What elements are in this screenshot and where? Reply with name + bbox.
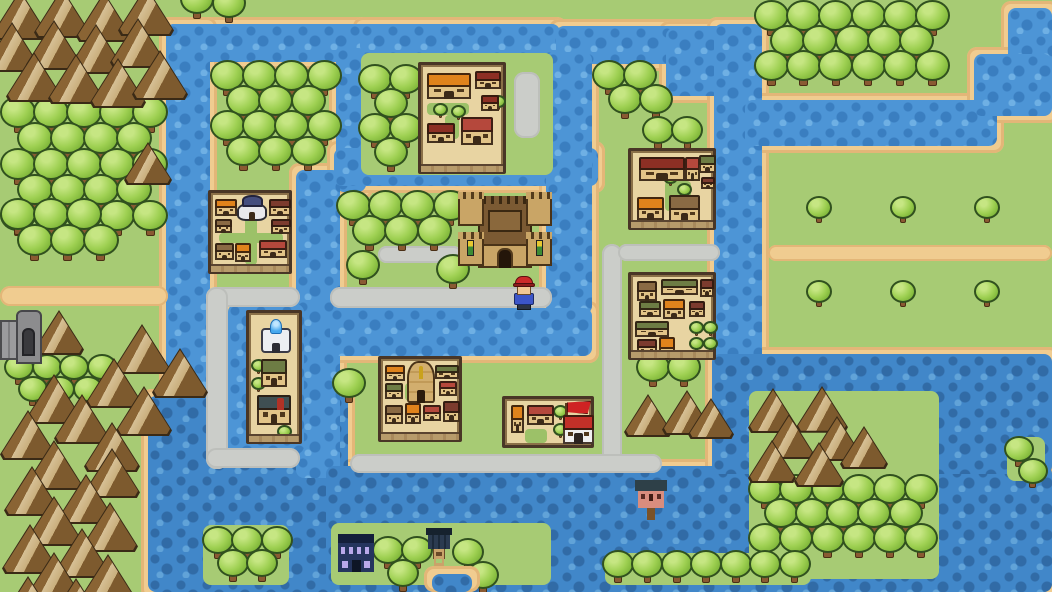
pier-hut-wall bbox=[638, 491, 664, 508]
house-brown-roof[interactable] bbox=[385, 405, 403, 424]
house-darkred-roof-door bbox=[438, 137, 445, 143]
river-arm-northeast bbox=[745, 100, 997, 146]
tower-door bbox=[417, 390, 426, 403]
house-maroon-roof[interactable] bbox=[443, 401, 460, 422]
watchtower-box bbox=[428, 535, 450, 549]
tree bbox=[291, 136, 326, 173]
house-orange-roof[interactable] bbox=[663, 299, 685, 319]
house-maroon-roof-door bbox=[449, 415, 453, 422]
tree-canopy bbox=[806, 280, 832, 303]
house-maroon-roof-roof bbox=[701, 177, 715, 184]
long-house-orange-roof-door bbox=[444, 91, 455, 99]
house-green-roof-roof bbox=[699, 155, 716, 165]
tree bbox=[873, 523, 907, 559]
tree-canopy bbox=[904, 523, 938, 553]
house-maroon-roof[interactable] bbox=[689, 301, 705, 317]
house-darkred-roof-roof bbox=[475, 71, 501, 81]
house-maroon-roof-roof bbox=[443, 401, 460, 413]
tall-house-red-roof[interactable] bbox=[685, 157, 700, 181]
window bbox=[342, 561, 348, 568]
tree bbox=[417, 215, 452, 252]
tree-canopy bbox=[631, 550, 663, 578]
tree-canopy bbox=[50, 224, 86, 256]
tree-canopy bbox=[433, 103, 448, 116]
tree-canopy bbox=[883, 50, 918, 81]
tree-canopy bbox=[671, 116, 703, 144]
town-tree bbox=[703, 321, 718, 337]
flag-house-door bbox=[574, 433, 583, 444]
tree-canopy bbox=[226, 136, 261, 167]
pier-hut-roof bbox=[635, 480, 667, 491]
house-green-roof-door bbox=[648, 332, 656, 337]
tree-canopy bbox=[387, 559, 419, 587]
house-maroon-roof-door bbox=[279, 229, 284, 234]
tree-canopy bbox=[180, 0, 214, 14]
tree-canopy bbox=[779, 523, 813, 553]
town-wall-footer bbox=[381, 432, 459, 440]
castle-gate[interactable] bbox=[497, 248, 513, 268]
castle[interactable] bbox=[458, 188, 552, 268]
house-red-roof[interactable] bbox=[259, 240, 287, 258]
tree-canopy bbox=[83, 224, 119, 256]
long-house-darkred-roof-door bbox=[656, 173, 667, 181]
tree-canopy bbox=[890, 196, 916, 219]
house-orange-roof[interactable] bbox=[405, 403, 421, 424]
tree-canopy bbox=[661, 550, 693, 578]
house-green-roof[interactable] bbox=[639, 301, 661, 317]
house-green-roof-roof bbox=[385, 383, 403, 392]
house-orange-roof[interactable] bbox=[385, 365, 405, 381]
window bbox=[641, 494, 645, 499]
tower-crenellation bbox=[526, 232, 552, 239]
tree-canopy bbox=[703, 321, 718, 334]
house-red-roof[interactable] bbox=[439, 381, 457, 396]
player-character[interactable] bbox=[513, 276, 535, 310]
house-brown-roof-roof bbox=[669, 195, 700, 210]
tree-canopy bbox=[873, 523, 907, 553]
dark-building-door[interactable] bbox=[352, 560, 361, 572]
tree bbox=[661, 550, 693, 584]
tree bbox=[842, 523, 876, 559]
tree-canopy bbox=[1018, 458, 1048, 484]
house-maroon-roof-roof bbox=[271, 219, 291, 227]
town-wall-footer bbox=[631, 220, 713, 228]
town-wall-footer bbox=[211, 264, 289, 272]
house-darkred-roof-door bbox=[485, 83, 491, 89]
house-darkred-roof-door bbox=[488, 106, 492, 111]
tree-canopy bbox=[217, 549, 249, 577]
long-house-green-roof-door bbox=[675, 290, 684, 295]
tree-canopy bbox=[915, 50, 950, 81]
tree-canopy bbox=[720, 550, 752, 578]
player-cap-brim bbox=[513, 283, 535, 287]
house-brown-roof-roof bbox=[637, 281, 657, 292]
tall-house-orange-roof-roof bbox=[659, 337, 675, 349]
tree bbox=[851, 50, 886, 87]
house-maroon-roof[interactable] bbox=[701, 177, 715, 189]
house-orange-roof-roof bbox=[405, 403, 421, 415]
tree-canopy bbox=[749, 550, 781, 578]
town-wall-footer bbox=[249, 434, 299, 442]
river-step-northeast bbox=[974, 54, 1052, 116]
house-red-roof-door bbox=[270, 252, 277, 258]
house-green-roof[interactable] bbox=[635, 321, 669, 337]
tree-canopy bbox=[291, 136, 326, 167]
house-green-roof-roof bbox=[639, 301, 661, 310]
house-darkred-roof[interactable] bbox=[481, 95, 499, 111]
tree bbox=[779, 550, 811, 584]
house-green-roof-roof bbox=[435, 365, 459, 373]
house-brown-roof-roof bbox=[385, 405, 403, 415]
house-red-roof-roof bbox=[527, 405, 554, 416]
tower-town[interactable] bbox=[378, 356, 462, 442]
tree bbox=[720, 550, 752, 584]
house-orange-roof-roof bbox=[385, 365, 405, 374]
tree bbox=[384, 215, 419, 252]
fountain-tower[interactable] bbox=[261, 319, 291, 353]
tree bbox=[671, 116, 703, 150]
tree bbox=[258, 136, 293, 173]
tree bbox=[17, 224, 53, 262]
house-orange-roof-door bbox=[223, 211, 228, 216]
house-red-roof[interactable] bbox=[423, 405, 441, 421]
river-top-mid bbox=[360, 24, 560, 54]
tree bbox=[246, 549, 278, 583]
lawn bbox=[525, 429, 547, 443]
tree bbox=[346, 250, 380, 286]
tree bbox=[132, 200, 168, 238]
tree-canopy bbox=[246, 549, 278, 577]
tree-canopy bbox=[132, 200, 168, 232]
stone-gate[interactable] bbox=[0, 306, 56, 364]
dark-house-door bbox=[271, 414, 278, 425]
long-house-green-roof-roof bbox=[661, 279, 698, 288]
flag-house-roof bbox=[563, 415, 594, 430]
game-map bbox=[0, 0, 1052, 592]
bush bbox=[806, 280, 832, 307]
tree-canopy bbox=[608, 84, 642, 114]
red-flag[interactable] bbox=[565, 401, 591, 414]
tower-orange-roof-roof bbox=[511, 405, 524, 420]
bush bbox=[974, 280, 1000, 307]
house-maroon-roof[interactable] bbox=[271, 219, 291, 234]
pier-post bbox=[647, 508, 655, 520]
house-green-roof-door bbox=[647, 312, 652, 317]
tree bbox=[602, 550, 634, 584]
tree bbox=[811, 523, 845, 559]
house-maroon-roof[interactable] bbox=[700, 279, 714, 297]
tree bbox=[818, 50, 853, 87]
watchtower-cap bbox=[426, 528, 452, 535]
town-wall-footer bbox=[421, 164, 503, 172]
flag-compound[interactable] bbox=[502, 396, 594, 448]
tree bbox=[915, 50, 950, 87]
house-brown-roof[interactable] bbox=[215, 243, 234, 260]
tree-canopy bbox=[806, 196, 832, 219]
tree bbox=[608, 84, 642, 120]
tree-canopy bbox=[602, 550, 634, 578]
east-town[interactable] bbox=[628, 272, 716, 360]
fountain-water-icon bbox=[270, 319, 282, 334]
house-brown-roof-door bbox=[392, 418, 396, 424]
tree bbox=[352, 215, 387, 252]
tree-canopy bbox=[642, 116, 674, 144]
house-brown-roof-roof bbox=[215, 219, 232, 227]
northeast-town[interactable] bbox=[628, 148, 716, 230]
path-fountain-west[interactable] bbox=[206, 287, 228, 469]
house-brown-roof-roof bbox=[215, 243, 234, 252]
house-maroon-roof-door bbox=[705, 291, 708, 297]
house-green-roof-door bbox=[271, 378, 277, 387]
tree-canopy bbox=[779, 550, 811, 578]
house-red-roof-roof bbox=[259, 240, 287, 250]
tree-canopy bbox=[417, 215, 452, 246]
tree bbox=[631, 550, 663, 584]
tree-canopy bbox=[811, 523, 845, 553]
long-house-darkred-roof[interactable] bbox=[639, 157, 685, 181]
path-fountain-bottom[interactable] bbox=[206, 448, 300, 468]
tree-canopy bbox=[754, 50, 789, 81]
big-house-red-roof[interactable] bbox=[461, 117, 493, 145]
tree-canopy bbox=[748, 523, 782, 553]
castle-banner bbox=[536, 240, 543, 256]
tree bbox=[642, 116, 674, 150]
house-maroon-roof-door bbox=[695, 312, 699, 317]
house-green-roof-door bbox=[705, 167, 709, 173]
tall-house-red-roof-roof bbox=[685, 157, 700, 170]
tree bbox=[786, 50, 821, 87]
trail-east-field[interactable] bbox=[768, 245, 1052, 261]
shrine-door bbox=[249, 212, 255, 221]
house-green-roof-door bbox=[392, 394, 396, 399]
tree-canopy bbox=[851, 50, 886, 81]
tree-canopy bbox=[258, 136, 293, 167]
tree bbox=[217, 549, 249, 583]
tree bbox=[212, 0, 246, 24]
town-wall-footer bbox=[631, 350, 713, 358]
house-red-roof-door bbox=[446, 391, 450, 396]
tree bbox=[749, 550, 781, 584]
house-darkred-roof[interactable] bbox=[475, 71, 501, 89]
house-orange-roof-door bbox=[671, 313, 676, 319]
tree bbox=[904, 523, 938, 559]
tall-house-red-roof-door bbox=[691, 173, 695, 181]
long-house-orange-roof-roof bbox=[427, 73, 471, 87]
tree bbox=[332, 368, 366, 404]
house-maroon-roof-roof bbox=[637, 339, 657, 348]
round-tower[interactable] bbox=[407, 361, 435, 403]
house-green-roof-door bbox=[444, 375, 450, 379]
house-red-roof-roof bbox=[423, 405, 441, 414]
house-brown-roof-door bbox=[221, 229, 225, 233]
player-face bbox=[517, 286, 531, 295]
path-north-town-east[interactable] bbox=[514, 72, 540, 138]
dark-building-roof bbox=[338, 534, 374, 543]
tower-banner bbox=[419, 366, 423, 379]
tower-crenellation bbox=[458, 232, 484, 239]
shrine-dome[interactable] bbox=[237, 195, 267, 221]
keep-upper bbox=[488, 210, 522, 232]
fountain-court[interactable] bbox=[246, 310, 302, 444]
tree-canopy bbox=[17, 224, 53, 256]
bush bbox=[890, 280, 916, 307]
house-darkred-roof-roof bbox=[427, 123, 455, 134]
chimney bbox=[277, 398, 283, 410]
house-green-roof[interactable] bbox=[385, 383, 403, 399]
house-darkred-roof-roof bbox=[481, 95, 499, 104]
house-orange-roof-door bbox=[647, 213, 653, 220]
tree-canopy bbox=[332, 368, 366, 398]
bush bbox=[890, 196, 916, 223]
town-tree bbox=[689, 321, 704, 337]
river-castle-south bbox=[330, 308, 592, 356]
tower-orange-roof[interactable] bbox=[511, 405, 524, 433]
tree bbox=[226, 136, 261, 173]
house-red-roof-door bbox=[537, 419, 543, 425]
house-maroon-roof-roof bbox=[269, 199, 291, 208]
house-orange-roof-roof bbox=[637, 197, 664, 210]
tree-canopy bbox=[639, 84, 673, 114]
dark-building[interactable] bbox=[338, 534, 374, 574]
tree-canopy bbox=[374, 137, 408, 167]
keep-crenellation bbox=[478, 196, 532, 204]
tree-canopy bbox=[786, 50, 821, 81]
tree-canopy bbox=[384, 215, 419, 246]
tower-orange-roof-door bbox=[516, 424, 519, 433]
shrine-dome-roof bbox=[242, 195, 263, 207]
bush bbox=[806, 196, 832, 223]
tree-canopy bbox=[974, 280, 1000, 303]
house-red-roof[interactable] bbox=[527, 405, 554, 425]
tower-crenellation bbox=[526, 192, 552, 199]
tree bbox=[639, 84, 673, 120]
house-brown-roof[interactable] bbox=[637, 281, 657, 301]
house-green-roof[interactable] bbox=[261, 359, 287, 387]
red-flag-banner bbox=[567, 401, 591, 414]
tree-canopy bbox=[346, 250, 380, 280]
house-orange-roof-roof bbox=[235, 243, 251, 253]
long-house-darkred-roof-roof bbox=[639, 157, 685, 170]
tower-crenellation bbox=[458, 192, 484, 199]
pier-hut-door[interactable] bbox=[649, 494, 653, 501]
tree-canopy bbox=[352, 215, 387, 246]
tree-canopy bbox=[212, 0, 246, 18]
house-maroon-roof-door bbox=[277, 211, 282, 216]
house-orange-roof-door bbox=[411, 417, 415, 424]
house-orange-roof[interactable] bbox=[215, 199, 237, 216]
tree-canopy bbox=[890, 280, 916, 303]
house-red-roof-door bbox=[430, 416, 434, 421]
path-east-to-bridge[interactable] bbox=[618, 244, 720, 261]
tree bbox=[754, 50, 789, 87]
path-east-vertical[interactable] bbox=[602, 244, 622, 470]
tree-canopy bbox=[974, 196, 1000, 219]
house-brown-roof-door bbox=[222, 255, 227, 260]
pool-water bbox=[432, 574, 472, 592]
house-maroon-roof[interactable] bbox=[269, 199, 291, 216]
house-orange-roof[interactable] bbox=[637, 197, 664, 220]
big-house-red-roof-door bbox=[473, 136, 481, 145]
pier-hut[interactable] bbox=[635, 480, 669, 520]
house-brown-roof[interactable] bbox=[215, 219, 232, 233]
path-south-main[interactable] bbox=[350, 454, 662, 473]
house-dark-roof[interactable] bbox=[257, 395, 291, 425]
shrine-town[interactable] bbox=[208, 190, 292, 274]
house-green-roof[interactable] bbox=[435, 365, 459, 379]
mountain-face bbox=[120, 0, 172, 34]
fountain-arch bbox=[272, 343, 279, 353]
house-green-roof-roof bbox=[635, 321, 669, 330]
tree-canopy bbox=[690, 550, 722, 578]
tree bbox=[1018, 458, 1048, 490]
house-orange-roof-door bbox=[241, 256, 245, 262]
house-maroon-roof-roof bbox=[689, 301, 705, 310]
house-maroon-roof-door bbox=[706, 185, 709, 189]
house-green-roof-roof bbox=[261, 359, 287, 374]
tree-canopy bbox=[703, 337, 718, 350]
window bbox=[364, 561, 370, 568]
window bbox=[657, 494, 661, 499]
tree-canopy bbox=[689, 321, 704, 334]
tree bbox=[374, 137, 408, 173]
house-orange-roof-roof bbox=[215, 199, 237, 208]
house-orange-roof-door bbox=[393, 376, 398, 381]
tree bbox=[180, 0, 214, 20]
bush bbox=[974, 196, 1000, 223]
long-house-green-roof[interactable] bbox=[661, 279, 698, 295]
dark-building-windows bbox=[341, 547, 371, 554]
house-darkred-roof[interactable] bbox=[427, 123, 455, 143]
north-town[interactable] bbox=[418, 62, 506, 174]
house-brown-roof[interactable] bbox=[669, 195, 700, 222]
tree-canopy bbox=[689, 337, 704, 350]
tree-canopy bbox=[842, 523, 876, 553]
trail-west[interactable] bbox=[0, 286, 168, 306]
tree-canopy bbox=[818, 50, 853, 81]
town-tree bbox=[433, 103, 448, 119]
house-red-roof-roof bbox=[439, 381, 457, 389]
tree bbox=[83, 224, 119, 262]
stone-gate-door[interactable] bbox=[22, 328, 35, 356]
house-maroon-roof-roof bbox=[700, 279, 714, 289]
house-green-roof[interactable] bbox=[699, 155, 716, 173]
house-orange-roof-roof bbox=[663, 299, 685, 310]
tree bbox=[883, 50, 918, 87]
tree bbox=[50, 224, 86, 262]
castle-banner bbox=[467, 240, 474, 256]
tree bbox=[387, 559, 419, 592]
house-orange-roof[interactable] bbox=[235, 243, 251, 262]
long-house-orange-roof[interactable] bbox=[427, 73, 471, 99]
dark-roof bbox=[257, 395, 291, 410]
tree bbox=[690, 550, 722, 584]
big-house-red-roof-roof bbox=[461, 117, 493, 132]
flag-house[interactable] bbox=[563, 415, 594, 444]
